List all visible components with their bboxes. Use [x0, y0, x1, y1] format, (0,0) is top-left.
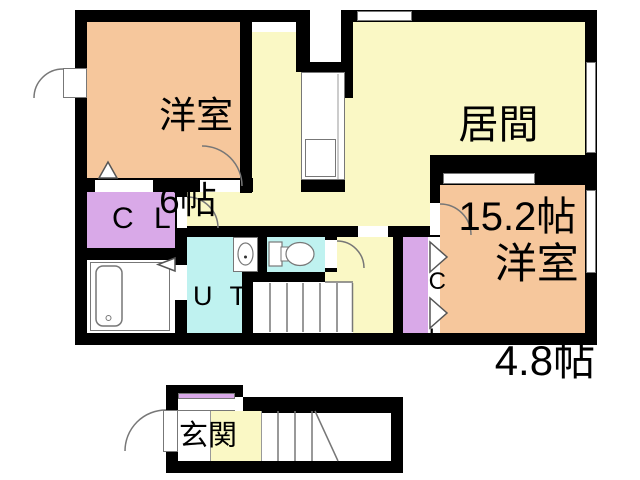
- closet-right-line1: C: [429, 268, 446, 295]
- wall-bedroom1-right: [240, 10, 252, 193]
- bedroom2-name: 洋室: [495, 240, 579, 287]
- building-notch: [310, 10, 341, 62]
- opening-bath-door: [175, 265, 187, 300]
- bedroom2-size: 4.8帖: [495, 337, 595, 384]
- closet-left-label: C L: [112, 202, 177, 237]
- wall-toilet-left: [258, 237, 267, 272]
- toilet-room: [267, 237, 325, 272]
- bedroom2-label: 洋室 4.8帖: [448, 192, 595, 433]
- utility-label: U T: [193, 281, 251, 312]
- door-bedroom1-balcony: [63, 68, 87, 98]
- window-living-right: [586, 62, 596, 153]
- floor-plan: 洋室 6帖 居間 15.2帖 洋室 4.8帖 C L U T C L 玄関: [0, 0, 640, 480]
- wall-below-toilet: [242, 272, 325, 282]
- entrance-interior-right: [243, 413, 391, 461]
- entrance-door-leaf: [163, 410, 178, 452]
- shoe-counter: [178, 400, 235, 411]
- bathroom: [90, 262, 170, 331]
- opening-toilet-door: [325, 240, 337, 268]
- closet-right-label: C L: [402, 240, 428, 380]
- window-living-top: [357, 11, 412, 21]
- kitchen-sink: [305, 139, 336, 177]
- door-arc-bedroom1-balcony: [34, 69, 63, 98]
- opening-hall-landing: [358, 226, 388, 237]
- stairs-2f: [253, 282, 353, 333]
- entrance-label: 玄関: [178, 420, 238, 453]
- door-arc-entrance: [125, 410, 166, 451]
- shoe-cabinet: [178, 393, 235, 399]
- living-name: 居間: [458, 103, 538, 147]
- stair-landing: [353, 237, 393, 333]
- bedroom1-name: 洋室: [159, 95, 233, 136]
- closet-right-line2: L: [429, 324, 442, 351]
- wall-kitchen-end: [301, 180, 345, 192]
- washbasin-box: [233, 237, 258, 272]
